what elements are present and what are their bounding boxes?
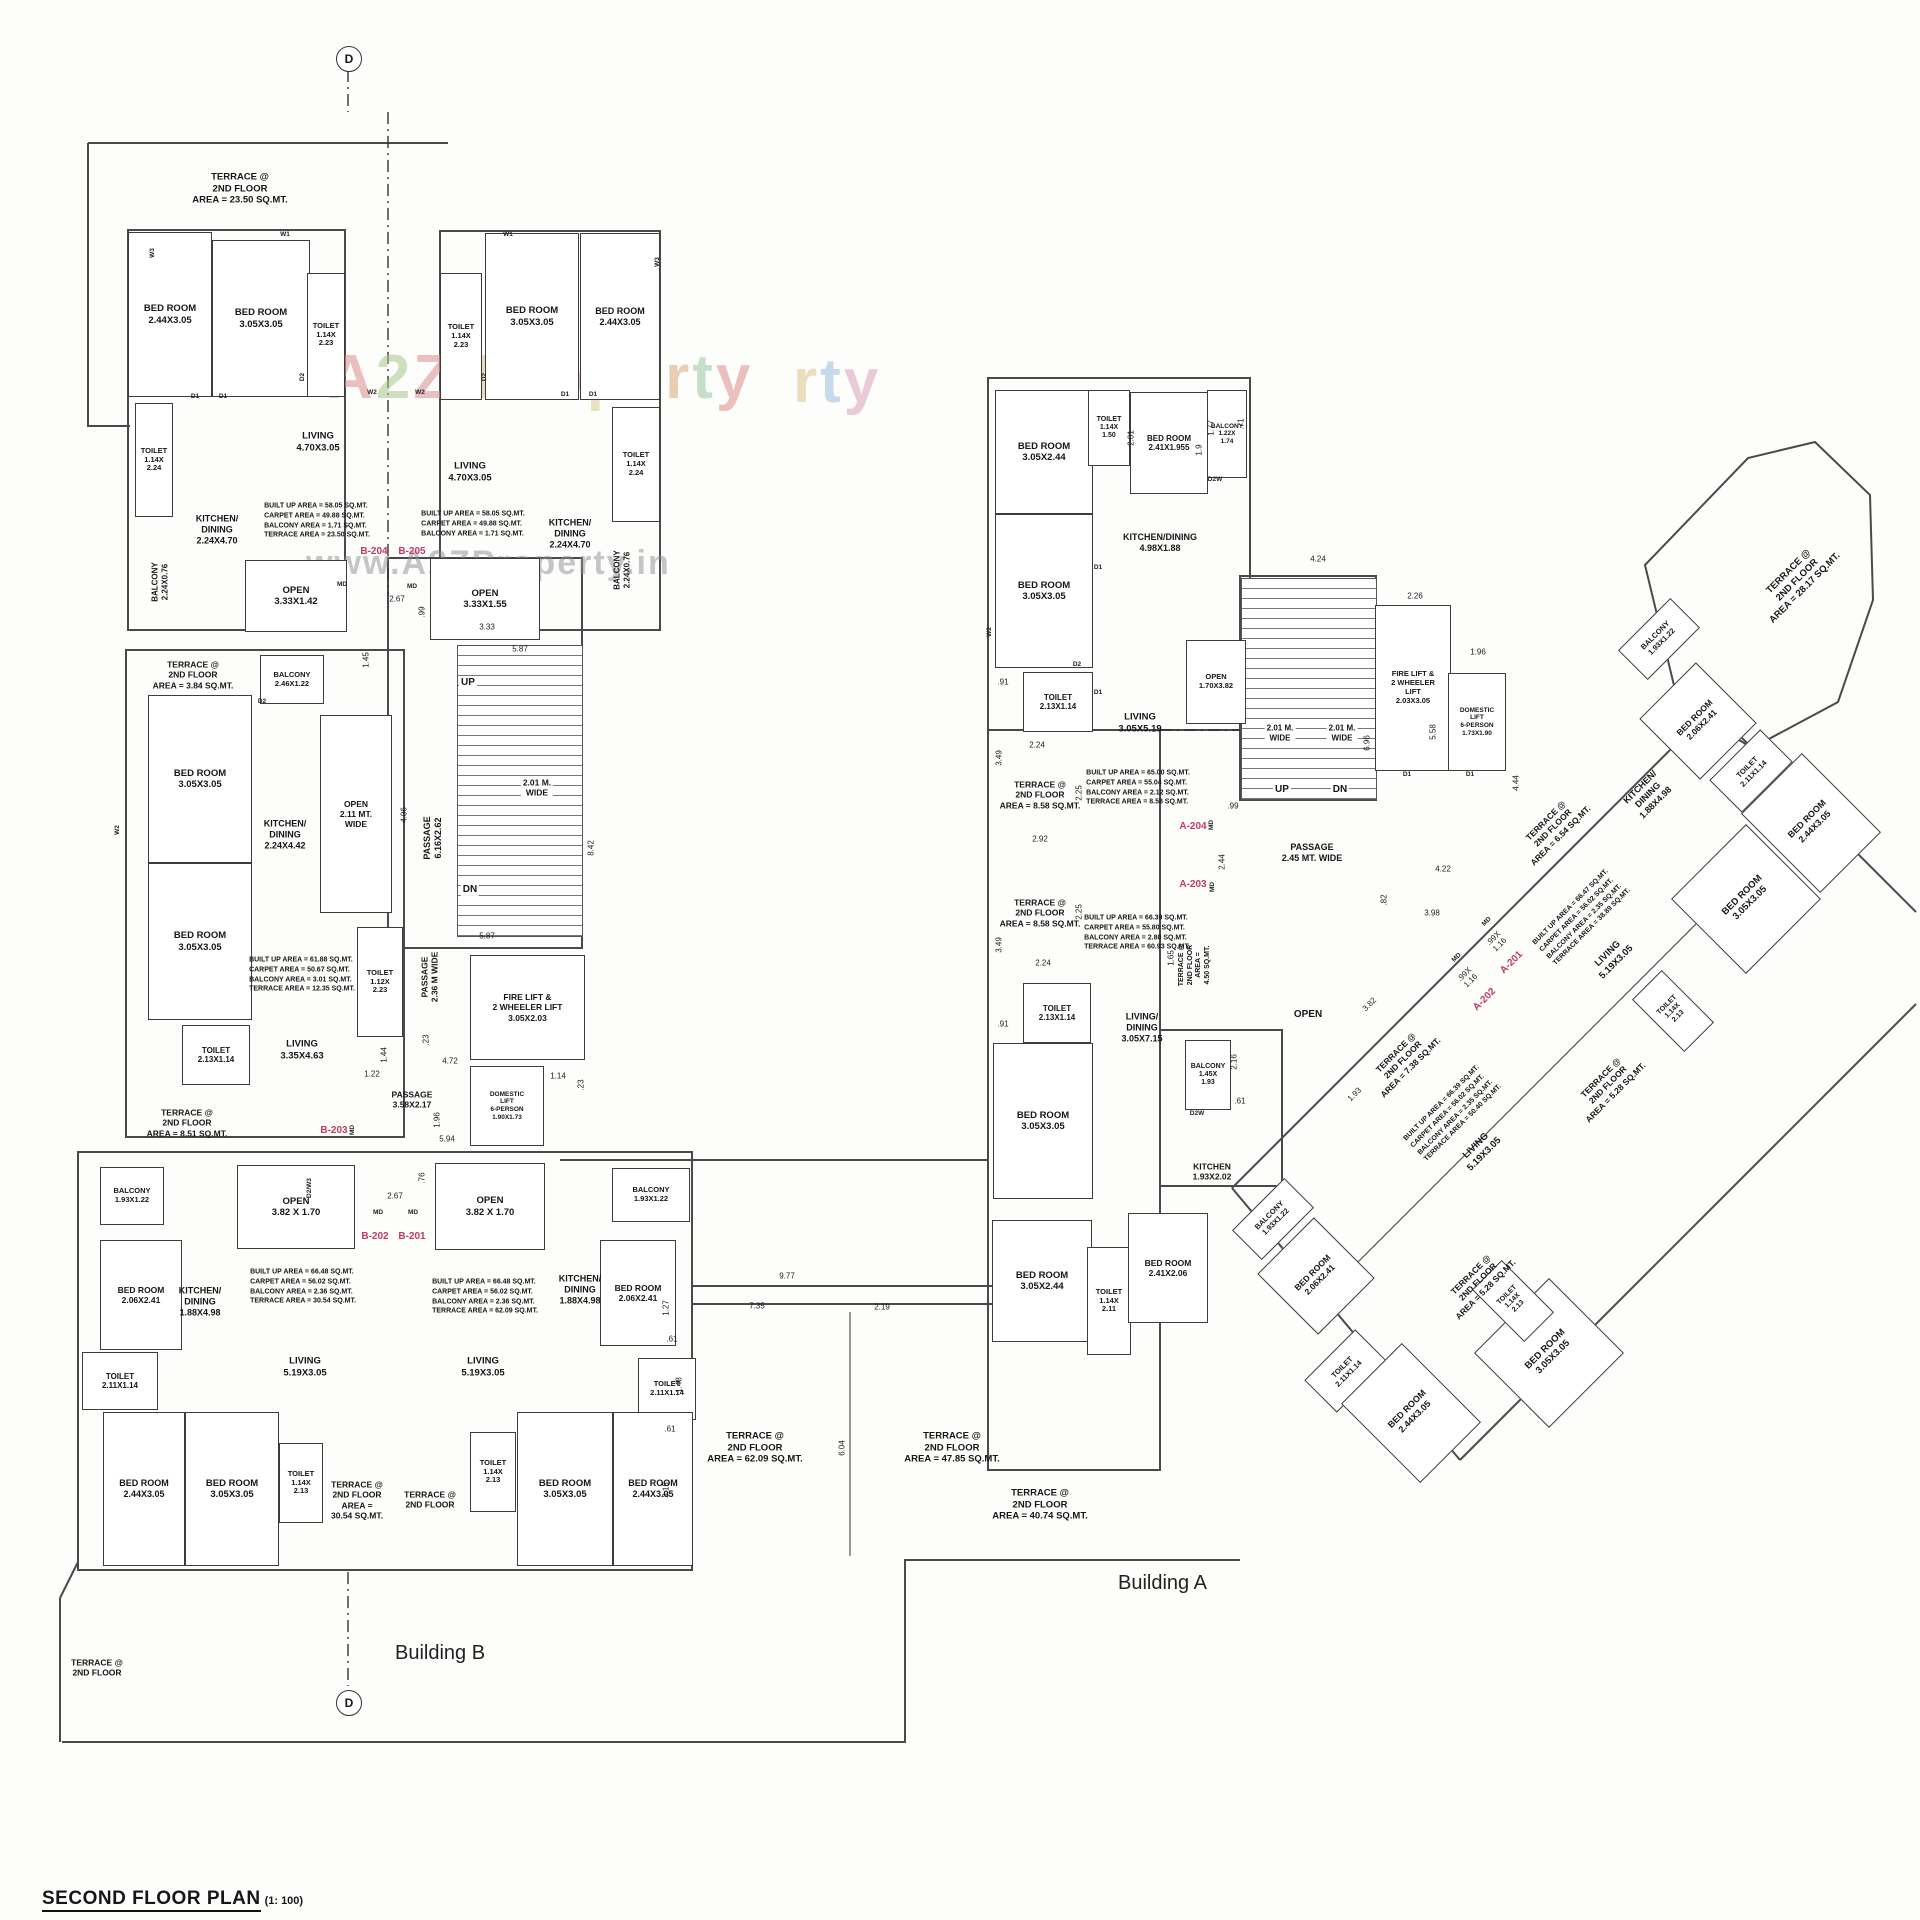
bedroom-room: BED ROOM 3.05X3.05	[995, 514, 1093, 668]
living-label: LIVING 4.70X3.05	[296, 430, 339, 453]
toilet-room: TOILET 1.14X 2.13	[279, 1443, 323, 1523]
building-a-label: Building A	[1118, 1572, 1207, 1595]
unit-id-B-202: B-202	[361, 1231, 388, 1243]
dimension: .91	[997, 679, 1008, 688]
bedroom-room: BED ROOM 3.05X2.44	[995, 390, 1093, 514]
dimension: 1.14	[550, 1073, 566, 1082]
dimension: 5.94	[439, 1136, 455, 1145]
bedroom-room: BED ROOM 2.06X2.41	[100, 1240, 182, 1350]
toilet-room: TOILET 1.14X 2.11	[1087, 1247, 1131, 1355]
kitchen-label: KITCHEN/ DINING 1.88X4.98	[179, 1286, 222, 1319]
toilet-room: TOILET 1.14X 2.23	[307, 273, 345, 397]
staircase-building-a	[1241, 578, 1377, 800]
bedroom-room: BED ROOM 2.44X3.05	[103, 1412, 185, 1566]
door-window-tag: D2	[1073, 661, 1081, 669]
drawing-title: SECOND FLOOR PLAN(1: 100)	[42, 1888, 303, 1910]
terrace-label: TERRACE @ 2ND FLOOR AREA = 3.84 SQ.MT.	[153, 659, 234, 690]
bedroom-room: BED ROOM 3.05X3.05	[148, 695, 252, 863]
dimension: 3.49	[996, 937, 1005, 953]
toilet-room: TOILET 1.12X 2.23	[357, 927, 403, 1037]
door-window-tag: D2	[258, 698, 266, 706]
passage-label: PASSAGE 2.36 M WIDE	[420, 952, 441, 1003]
open-room: OPEN 1.70X3.82	[1186, 640, 1246, 724]
dimension: 6.04	[839, 1440, 848, 1456]
toilet-room: TOILET 1.14X 2.23	[440, 273, 482, 400]
toilet-room: TOILET 1.14X 2.13	[470, 1432, 516, 1512]
terrace-label: TERRACE @ 2ND FLOOR	[71, 1658, 123, 1679]
unit-id-A-204: A-204	[1179, 821, 1206, 833]
dimension: .23	[578, 1079, 587, 1090]
dimension: 1.22	[364, 1071, 380, 1080]
area-stats: BUILT UP AREA = 66.48 SQ.MT. CARPET AREA…	[250, 1267, 356, 1306]
dimension: 4.24	[1310, 556, 1326, 565]
dimension: 3.33	[479, 624, 495, 633]
terrace-label: TERRACE @ 2ND FLOOR	[404, 1490, 456, 1511]
dimension: 2.16	[1231, 1054, 1240, 1070]
dimension: .23	[423, 1034, 432, 1045]
dimension: 3.98	[1424, 910, 1440, 919]
dimension: 2.19	[874, 1304, 890, 1313]
toilet-room: TOILET 2.13X1.14	[1023, 983, 1091, 1043]
dimension: 5.58	[1430, 724, 1439, 740]
terrace-label: TERRACE @ 2ND FLOOR AREA = 40.74 SQ.MT.	[992, 1488, 1087, 1523]
terrace-label: TERRACE @ 2ND FLOOR AREA = 4.50 SQ.MT.	[1178, 944, 1212, 987]
terrace-label: TERRACE @ 2ND FLOOR AREA = 23.50 SQ.MT.	[192, 172, 287, 207]
bedroom-room: BED ROOM 3.05X3.05	[148, 863, 252, 1020]
kitchen-label: KITCHEN/DINING 4.98X1.88	[1123, 532, 1197, 554]
door-window-tag: D1	[1403, 771, 1411, 779]
open-room: OPEN 3.33X1.42	[245, 560, 347, 632]
dimension: 4.72	[442, 1058, 458, 1067]
area-stats: BUILT UP AREA = 58.05 SQ.MT. CARPET AREA…	[264, 501, 370, 540]
dimension: 4.22	[1435, 866, 1451, 875]
floor-plan-canvas: A2Z Property rty www.A2ZProperty.in D D …	[0, 0, 1920, 1920]
terrace-label: TERRACE @ 2ND FLOOR AREA = 8.58 SQ.MT.	[1000, 779, 1081, 810]
area-stats: BUILT UP AREA = 58.05 SQ.MT. CARPET AREA…	[421, 509, 525, 538]
dimension: .82	[1381, 894, 1390, 905]
dimension: 1.9	[1196, 444, 1205, 455]
door-window-tag: W3	[654, 257, 662, 267]
bedroom-room: BED ROOM 2.44X3.05	[613, 1412, 693, 1566]
door-window-tag: D2W	[1208, 476, 1222, 484]
dimension: .76	[419, 1172, 428, 1183]
door-window-tag: W2	[367, 389, 377, 397]
living-label: LIVING 4.70X3.05	[448, 460, 491, 483]
dimension: 2.26	[1407, 593, 1423, 602]
dimension: .99	[1227, 803, 1238, 812]
door-window-tag: MD	[408, 1209, 418, 1217]
kitchen-label: KITCHEN 1.93X2.02	[1193, 1162, 1232, 1183]
balcony-label: BALCONY 2.24X0.76	[150, 562, 170, 602]
dimension: 2.67	[389, 596, 405, 605]
section-marker-top: D	[336, 46, 362, 72]
dimension: 5.87	[512, 646, 528, 655]
living-label: LIVING 3.35X4.63	[280, 1038, 323, 1061]
bedroom-room: BED ROOM 3.05X2.44	[992, 1220, 1092, 1342]
domestic-lift-room: DOMESTIC LIFT 6-PERSON 1.90X1.73	[470, 1066, 544, 1146]
door-window-tag: D2	[299, 373, 307, 381]
dimension: 2.67	[387, 1193, 403, 1202]
dimension: 2.24	[1029, 742, 1045, 751]
area-stats: BUILT UP AREA = 65.00 SQ.MT. CARPET AREA…	[1086, 768, 1190, 807]
dimension: .61	[1234, 1098, 1245, 1107]
kitchen-label: KITCHEN/ DINING 1.88X4.98	[559, 1274, 602, 1307]
dimension: .71	[1238, 418, 1247, 429]
door-window-tag: D1	[219, 393, 227, 401]
area-stats: BUILT UP AREA = 66.48 SQ.MT. CARPET AREA…	[432, 1277, 538, 1316]
door-window-tag: W3	[149, 248, 157, 258]
living-label: LIVING 3.05X5.19	[1118, 711, 1161, 734]
kitchen-label: KITCHEN/ DINING 2.24X4.42	[264, 819, 307, 852]
door-window-tag: D2/W3	[306, 1178, 314, 1198]
bedroom-room: BED ROOM 2.41X2.06	[1128, 1213, 1208, 1323]
toilet-room: TOILET 2.11X1.14	[638, 1358, 696, 1420]
door-window-tag: MD	[373, 1209, 383, 1217]
dimension: 2.25	[1076, 904, 1085, 920]
stairs-down-label: DN	[1331, 784, 1349, 796]
open-room: OPEN 3.82 X 1.70	[435, 1163, 545, 1250]
dimension: .61	[666, 1336, 677, 1345]
drawing-scale: (1: 100)	[265, 1895, 304, 1907]
passage-label: PASSAGE 3.58X2.17	[392, 1090, 433, 1111]
domestic-lift-room: DOMESTIC LIFT 6-PERSON 1.73X1.90	[1448, 673, 1506, 771]
open-label: OPEN	[1294, 1009, 1322, 1021]
open-room: OPEN 2.11 MT. WIDE	[320, 715, 392, 913]
building-b-label: Building B	[395, 1642, 485, 1665]
bedroom-room: BED ROOM 2.44X3.05	[580, 233, 660, 400]
fire-lift-room: FIRE LIFT & 2 WHEELER LIFT 2.03X3.05	[1375, 605, 1451, 771]
drawing-title-text: SECOND FLOOR PLAN	[42, 1888, 261, 1912]
terrace-label: TERRACE @ 2ND FLOOR AREA = 8.58 SQ.MT.	[1000, 897, 1081, 928]
dimension: 2.24	[1035, 960, 1051, 969]
stairs-down-label: DN	[461, 884, 479, 896]
unit-id-B-204: B-204	[360, 546, 387, 558]
dimension: 1.44	[381, 1047, 390, 1063]
dimension: 1.48	[676, 1377, 685, 1393]
living-label: LIVING/ DINING 3.05X7.15	[1121, 1012, 1162, 1045]
dimension: 1.65	[1168, 950, 1177, 966]
living-label: LIVING 5.19X3.05	[283, 1355, 326, 1378]
door-window-tag: D1	[1466, 771, 1474, 779]
door-window-tag: W1	[503, 231, 513, 239]
dimension: 3.15	[663, 1482, 672, 1498]
kitchen-label: KITCHEN/ DINING 2.24X4.70	[549, 518, 592, 551]
bedroom-room: BED ROOM 3.05X3.05	[993, 1043, 1093, 1199]
unit-id-B-203: B-203	[320, 1125, 347, 1137]
bedroom-room: BED ROOM 2.44X3.05	[128, 232, 212, 397]
stairs-width-label: 2.01 M. WIDE	[1265, 723, 1296, 743]
balcony-room: BALCONY 1.45X 1.93	[1185, 1040, 1231, 1110]
toilet-room: TOILET 1.14X 1.50	[1088, 390, 1130, 466]
terrace-label: TERRACE @ 2ND FLOOR AREA = 8.51 SQ.MT.	[147, 1107, 228, 1138]
bedroom-room: BED ROOM 3.05X3.05	[185, 1412, 279, 1566]
toilet-room: TOILET 2.13X1.14	[1023, 672, 1093, 732]
door-window-tag: D1	[589, 391, 597, 399]
dimension: .61	[664, 1426, 675, 1435]
bedroom-room: BED ROOM 2.06X2.41	[600, 1240, 676, 1346]
dimension: 1.96	[1470, 649, 1486, 658]
door-window-tag: D2	[481, 373, 489, 381]
dimension: 2.92	[1032, 836, 1048, 845]
stairs-up-label: UP	[459, 677, 477, 689]
terrace-label: TERRACE @ 2ND FLOOR AREA = 47.85 SQ.MT.	[904, 1431, 999, 1466]
bedroom-room: BED ROOM 2.41X1.955	[1130, 392, 1208, 494]
unit-id-B-201: B-201	[398, 1231, 425, 1243]
stairs-up-label: UP	[1273, 784, 1291, 796]
door-window-tag: MD	[1208, 820, 1216, 830]
balcony-label: BALCONY 2.24X0.76	[612, 550, 632, 590]
open-room: OPEN 3.82 X 1.70	[237, 1165, 355, 1249]
door-window-tag: D1	[191, 393, 199, 401]
bedroom-room: BED ROOM 3.05X3.05	[212, 240, 310, 397]
stairs-width-label: 2.01 M. WIDE	[521, 778, 553, 799]
dimension: 2.44	[1219, 854, 1228, 870]
area-stats: BUILT UP AREA = 61.88 SQ.MT. CARPET AREA…	[249, 955, 355, 994]
dimension: 1.96	[434, 1112, 443, 1128]
door-window-tag: W1	[280, 231, 290, 239]
passage-label: PASSAGE 2.45 MT. WIDE	[1282, 842, 1343, 864]
toilet-room: TOILET 2.11X1.14	[82, 1352, 158, 1410]
section-marker-bottom: D	[336, 1690, 362, 1716]
terrace-label: TERRACE @ 2ND FLOOR AREA = 30.54 SQ.MT.	[331, 1479, 383, 1520]
door-window-tag: W2	[114, 825, 122, 835]
unit-id-B-205: B-205	[398, 546, 425, 558]
door-window-tag: D2W	[1190, 1110, 1204, 1118]
bedroom-room: BED ROOM 3.05X3.05	[517, 1412, 613, 1566]
door-window-tag: MD	[407, 583, 417, 591]
dimension: 3.49	[996, 750, 1005, 766]
dimension: 1.77	[1208, 420, 1217, 436]
balcony-room: BALCONY 2.46X1.22	[260, 655, 324, 704]
dimension: 1.27	[663, 1300, 672, 1316]
area-stats: BUILT UP AREA = 66.39 SQ.MT. CARPET AREA…	[1084, 913, 1190, 952]
balcony-room: BALCONY 1.93X1.22	[612, 1168, 690, 1222]
dimension: 4.06	[401, 807, 410, 823]
toilet-room: TOILET 1.14X 2.24	[612, 407, 660, 522]
door-window-tag: W2	[415, 389, 425, 397]
passage-label: PASSAGE 6.16X2.62	[422, 816, 444, 859]
dimension: 7.35	[749, 1303, 765, 1312]
dimension: 8.42	[588, 840, 597, 856]
dimension: 5.87	[479, 933, 495, 942]
dimension: .91	[997, 1021, 1008, 1030]
door-window-tag: D1	[1094, 689, 1102, 697]
unit-id-A-203: A-203	[1179, 879, 1206, 891]
dimension: 1.45	[363, 652, 372, 668]
dimension: 2.25	[1076, 785, 1085, 801]
terrace-label: TERRACE @ 2ND FLOOR AREA = 62.09 SQ.MT.	[707, 1431, 802, 1466]
dimension: 2.01	[1128, 430, 1137, 446]
living-label: LIVING 5.19X3.05	[461, 1355, 504, 1378]
balcony-room: BALCONY 1.93X1.22	[100, 1167, 164, 1225]
fire-lift-room: FIRE LIFT & 2 WHEELER LIFT 3.05X2.03	[470, 955, 585, 1060]
dimension: 4.44	[1513, 775, 1522, 791]
kitchen-label: KITCHEN/ DINING 2.24X4.70	[196, 514, 239, 547]
dimension: 6.96	[1364, 735, 1373, 751]
door-window-tag: D1	[1094, 564, 1102, 572]
stairs-width-label: 2.01 M. WIDE	[1327, 723, 1358, 743]
door-window-tag: MD	[1209, 882, 1217, 892]
dimension: 9.77	[779, 1273, 795, 1282]
door-window-tag: MD	[337, 581, 347, 589]
door-window-tag: D1	[561, 391, 569, 399]
toilet-room: TOILET 1.14X 2.24	[135, 403, 173, 517]
door-window-tag: W2	[986, 627, 994, 637]
bedroom-room: BED ROOM 3.05X3.05	[485, 233, 579, 400]
door-window-tag: MD	[349, 1125, 357, 1135]
toilet-room: TOILET 2.13X1.14	[182, 1025, 250, 1085]
dimension: .99	[419, 606, 428, 617]
